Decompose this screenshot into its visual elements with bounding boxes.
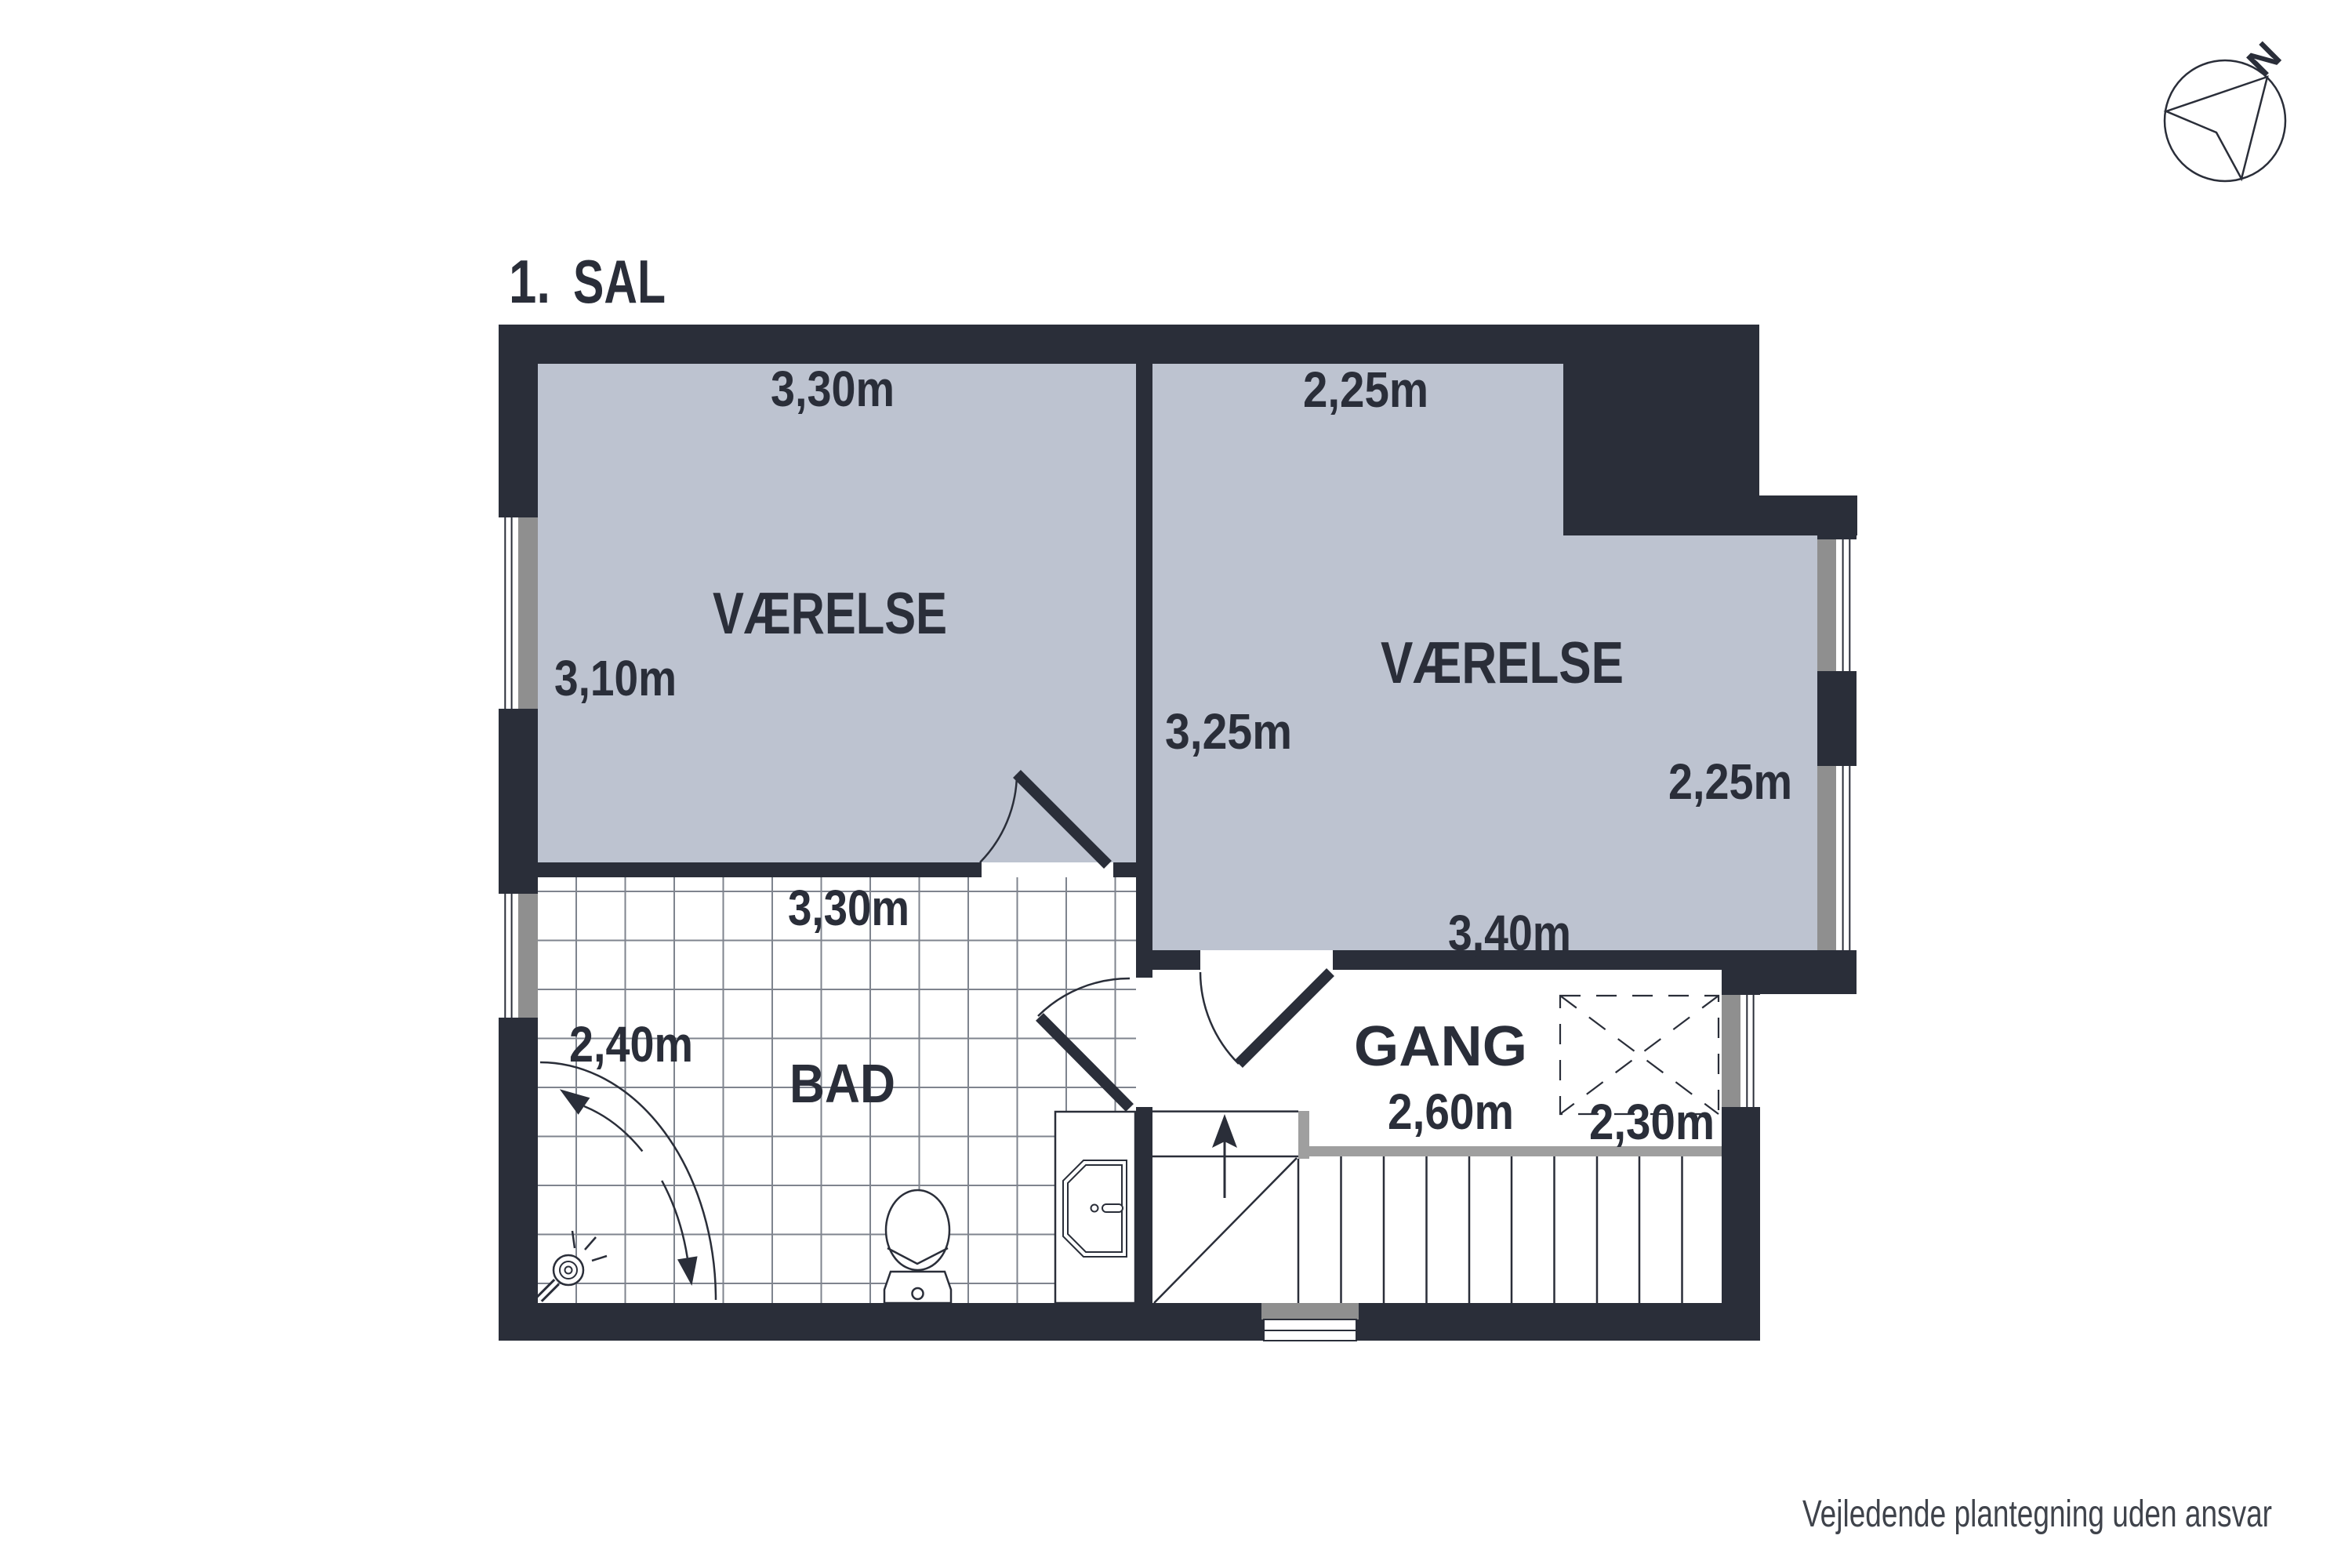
svg-text:BAD: BAD: [789, 1053, 895, 1114]
svg-text:SAL: SAL: [573, 247, 666, 316]
svg-text:3,40m: 3,40m: [1448, 905, 1571, 961]
svg-text:2,25m: 2,25m: [1303, 361, 1428, 418]
svg-text:Vejledende plantegning uden an: Vejledende plantegning uden ansvar: [1802, 1494, 2272, 1535]
svg-text:VÆRELSE: VÆRELSE: [713, 580, 947, 646]
svg-text:2,40m: 2,40m: [569, 1016, 693, 1073]
svg-text:1.: 1.: [509, 247, 550, 316]
svg-text:3,25m: 3,25m: [1165, 703, 1292, 760]
svg-text:3,30m: 3,30m: [771, 361, 895, 417]
svg-text:GANG: GANG: [1354, 1015, 1527, 1078]
svg-text:VÆRELSE: VÆRELSE: [1381, 630, 1624, 695]
svg-text:3,10m: 3,10m: [554, 650, 677, 706]
svg-text:2,25m: 2,25m: [1668, 753, 1792, 810]
svg-text:3,30m: 3,30m: [788, 880, 909, 936]
svg-text:2,60m: 2,60m: [1388, 1083, 1514, 1140]
svg-text:2,30m: 2,30m: [1589, 1094, 1715, 1150]
